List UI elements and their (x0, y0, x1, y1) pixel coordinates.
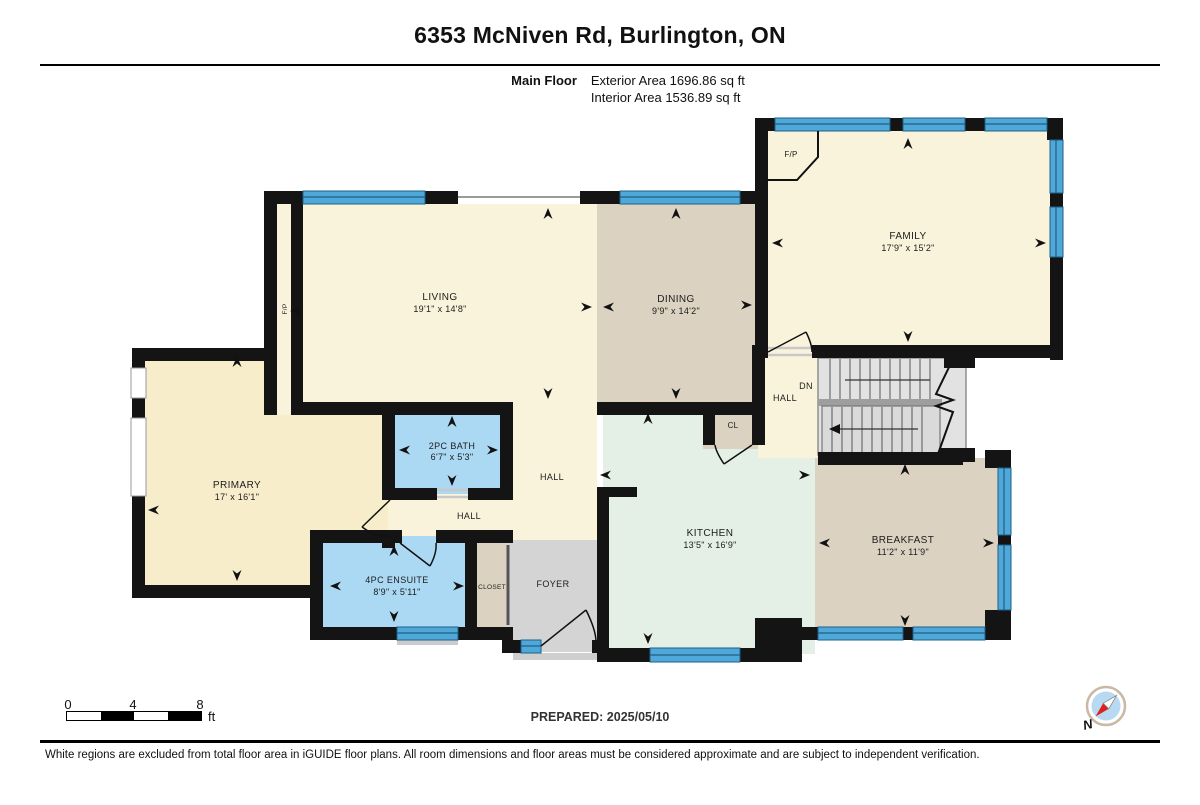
room-living-dims: 19'1" x 14'8" (413, 304, 466, 314)
room-bath2pc-dims: 6'7" x 5'3" (431, 452, 474, 462)
room-breakfast-label: BREAKFAST (872, 535, 935, 546)
cl-label: CL (728, 421, 739, 430)
family-fireplace-label: F/P (784, 150, 797, 159)
floor-plan-page: 6353 McNiven Rd, Burlington, ON Main Flo… (0, 0, 1200, 805)
staircase (818, 358, 966, 455)
room-ensuite-label: 4PC ENSUITE (365, 575, 428, 585)
disclaimer-text: White regions are excluded from total fl… (45, 749, 1165, 761)
room-ensuite-dims: 8'9" x 5'11" (373, 587, 420, 597)
stairs-dn-label: DN (799, 381, 813, 391)
room-kitchen-label: KITCHEN (687, 528, 734, 539)
entry-step (513, 653, 598, 660)
hall-stairs-label: HALL (773, 393, 797, 403)
room-dining-dims: 9'9" x 14'2" (652, 306, 700, 316)
room-primary-dims: 17' x 16'1" (215, 492, 259, 502)
floor-plan-drawing: FAMILY 17'9" x 15'2" LIVING 19'1" x 14'8… (0, 0, 1200, 805)
room-primary-label: PRIMARY (213, 480, 261, 491)
room-foyer-floor (508, 540, 597, 652)
room-family-label: FAMILY (889, 231, 926, 242)
hall-small-label: HALL (457, 511, 481, 521)
room-hall-stairs-floor (758, 352, 818, 458)
room-kitchen-dims: 13'5" x 16'9" (683, 540, 736, 550)
room-bath2pc-label: 2PC BATH (429, 441, 476, 451)
ensuite-window-step (397, 640, 458, 645)
living-fireplace-label: F/P (282, 303, 289, 314)
hall-main-label: HALL (540, 472, 564, 482)
footer-rule (40, 740, 1160, 743)
closet-label: CLOSET (478, 584, 506, 591)
room-living-floor (277, 197, 597, 409)
room-breakfast-dims: 11'2" x 11'9" (877, 547, 929, 557)
prepared-date: PREPARED: 2025/05/10 (0, 710, 1200, 724)
room-living-label: LIVING (422, 292, 457, 303)
room-dining-label: DINING (657, 294, 694, 305)
foyer-label: FOYER (536, 579, 569, 589)
room-family-dims: 17'9" x 15'2" (881, 243, 934, 253)
